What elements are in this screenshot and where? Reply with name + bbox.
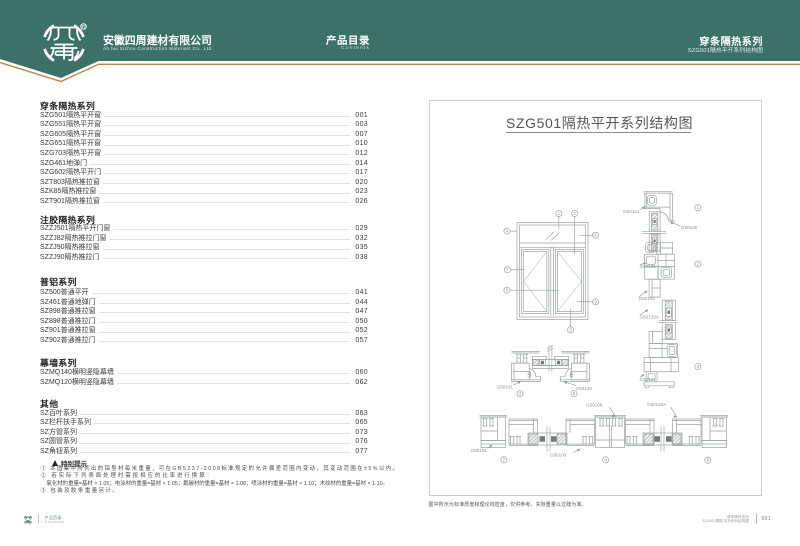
svg-text:G50106: G50106	[586, 403, 603, 408]
svg-text:G50120: G50120	[681, 225, 698, 230]
svg-text:9: 9	[707, 458, 710, 463]
svg-text:2: 2	[697, 262, 700, 267]
svg-text:7: 7	[503, 457, 506, 462]
svg-text:G50103: G50103	[639, 296, 656, 301]
svg-text:G50120A: G50120A	[647, 402, 667, 407]
svg-text:9: 9	[594, 299, 597, 304]
svg-text:8: 8	[506, 288, 509, 293]
svg-text:1: 1	[558, 211, 561, 216]
svg-text:G50101: G50101	[623, 209, 640, 214]
svg-text:G50103: G50103	[550, 453, 567, 458]
svg-text:2: 2	[573, 211, 576, 216]
svg-text:4: 4	[506, 229, 509, 234]
svg-text:8: 8	[604, 457, 607, 462]
svg-text:6: 6	[573, 391, 576, 396]
svg-text:G50120: G50120	[576, 386, 593, 391]
svg-text:G50101: G50101	[497, 385, 514, 390]
svg-text:1: 1	[697, 205, 700, 210]
svg-text:3: 3	[569, 327, 572, 332]
svg-text:6: 6	[594, 233, 597, 238]
svg-text:G50120A: G50120A	[640, 315, 660, 320]
svg-text:4: 4	[519, 391, 522, 396]
svg-text:G50106: G50106	[640, 264, 657, 269]
svg-text:G50101: G50101	[640, 377, 657, 382]
svg-text:7: 7	[506, 267, 509, 272]
svg-text:3: 3	[697, 364, 700, 369]
svg-text:G50101: G50101	[471, 448, 488, 453]
